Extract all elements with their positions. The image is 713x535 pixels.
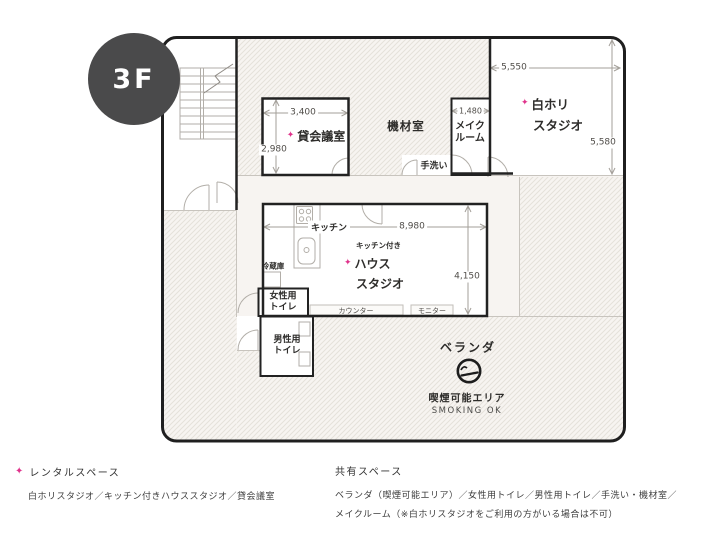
room-label-house-studio: キッチン付き ✦ ハウス スタジオ — [344, 240, 404, 292]
legend-rental-title: レンタルスペース — [29, 464, 120, 479]
room-label-equipment: 機材室 — [387, 118, 425, 134]
floor-badge-label: 3F — [112, 64, 155, 95]
womens-toilet-line2: トイレ — [269, 302, 296, 313]
rental-marker-icon: ✦ — [15, 467, 23, 477]
room-label-handwash: 手洗い — [420, 159, 447, 172]
room-label-fridge: 冷蔵庫 — [262, 261, 285, 272]
dim-makeup-width: 1,480 — [457, 105, 484, 116]
legend-shared-items-line1: ベランダ（喫煙可能エリア）／女性用トイレ／男性用トイレ／手洗い・機材室／ — [335, 488, 677, 501]
room-label-meeting: ✦ 貸会議室 — [287, 128, 346, 145]
room-label-mens-toilet: 男性用 トイレ — [273, 335, 300, 357]
house-studio-name-line1: ハウス — [355, 255, 391, 272]
rental-marker-icon: ✦ — [521, 99, 529, 108]
room-label-veranda: ベランダ — [440, 339, 496, 356]
hatch-right-zone — [519, 177, 625, 317]
floor-badge: 3F — [88, 33, 180, 125]
house-studio-name-line2: スタジオ — [356, 275, 404, 292]
mens-toilet-line1: 男性用 — [273, 335, 300, 346]
room-label-white-studio: ✦ 白ホリ スタジオ — [521, 94, 583, 134]
makeup-name-line2: ルーム — [455, 133, 485, 145]
legend-rental: ✦ レンタルスペース 白ホリスタジオ／キッチン付きハウススタジオ／貸会議室 — [15, 464, 275, 502]
monitor-label: モニター — [418, 306, 446, 316]
dim-house-studio-height: 4,150 — [452, 272, 482, 283]
dim-white-studio-height: 5,580 — [588, 138, 618, 149]
mens-toilet-line2: トイレ — [273, 346, 300, 357]
dim-meeting-height: 2,980 — [259, 145, 289, 156]
white-studio-name-line1: 白ホリ — [532, 94, 570, 113]
smoking-area-label: 喫煙可能エリア — [429, 390, 506, 405]
counter-label: カウンター — [339, 306, 374, 316]
legend-shared-title: 共有スペース — [335, 463, 677, 478]
makeup-name-line1: メイク — [455, 121, 485, 133]
rental-marker-icon: ✦ — [287, 132, 295, 141]
smoking-ok-label: SMOKING OK — [432, 406, 502, 416]
legend-shared: 共有スペース ベランダ（喫煙可能エリア）／女性用トイレ／男性用トイレ／手洗い・機… — [335, 463, 677, 520]
dim-white-studio-width: 5,550 — [499, 62, 529, 73]
white-studio-name-line2: スタジオ — [533, 115, 583, 134]
dim-meeting-width: 3,400 — [288, 107, 318, 118]
womens-toilet-line1: 女性用 — [269, 292, 296, 303]
house-studio-prefix: キッチン付き — [356, 240, 404, 251]
toilet-corridor — [237, 316, 260, 351]
room-label-womens-toilet: 女性用 トイレ — [269, 292, 296, 313]
floor-plan-page: 3F ✦ 貸会議室 機材室 メイク ルーム ✦ 白ホリ スタジオ 手洗い キッチ… — [0, 0, 713, 535]
dim-house-studio-width: 8,980 — [397, 222, 427, 233]
meeting-room-name: 貸会議室 — [297, 128, 345, 145]
room-label-makeup: メイク ルーム — [455, 121, 485, 145]
room-label-kitchen: キッチン — [308, 221, 350, 234]
hatch-left-strip — [163, 210, 237, 441]
legend-shared-items-line2: メイクルーム（※白ホリスタジオをご利用の方がいる場合は不可） — [335, 507, 677, 520]
legend-rental-items: 白ホリスタジオ／キッチン付きハウススタジオ／貸会議室 — [28, 489, 275, 502]
rental-marker-icon: ✦ — [344, 259, 352, 268]
